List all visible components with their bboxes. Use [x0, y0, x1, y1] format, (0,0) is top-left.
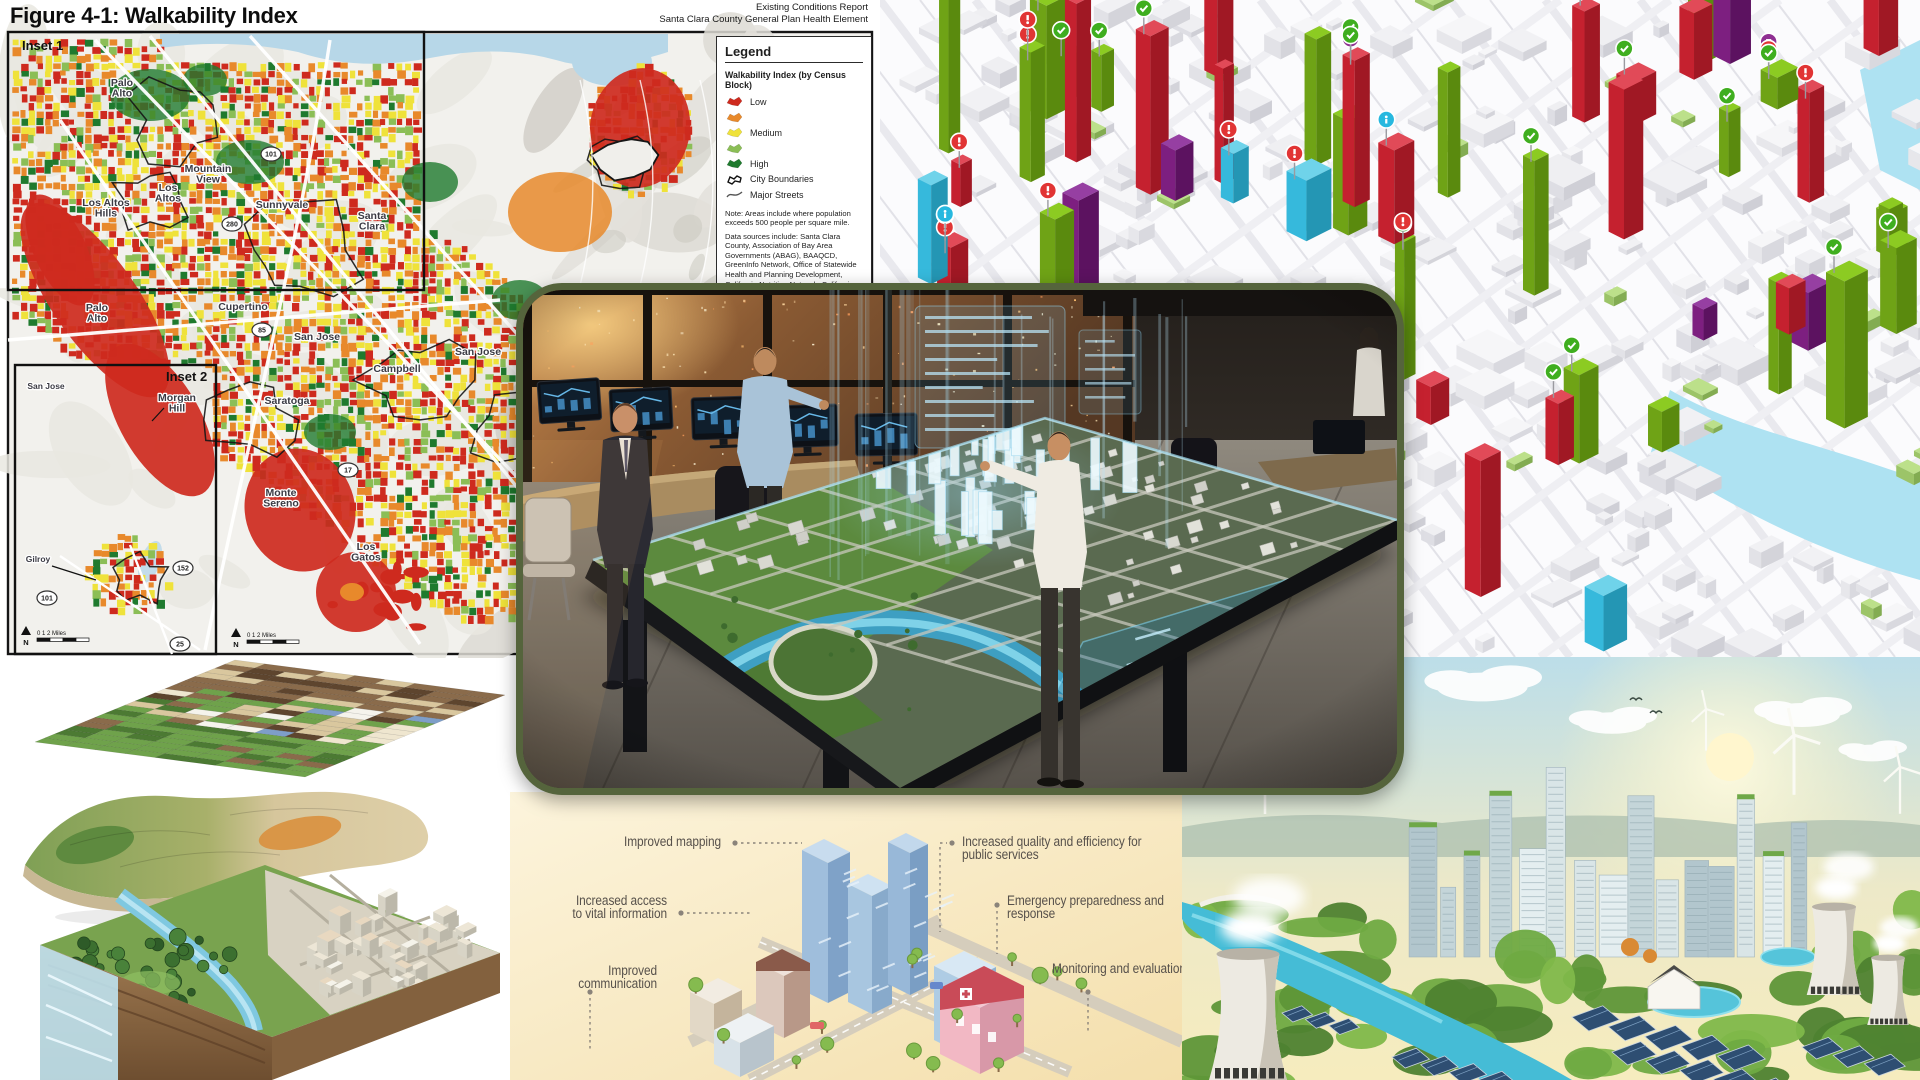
infographic-callout: Improved communication — [528, 965, 657, 991]
map-pin-icon — [1394, 213, 1411, 230]
legend-section-title: Walkability Index (by Census Block) — [725, 70, 863, 90]
legend-note: Note: Areas include where population exc… — [725, 209, 863, 228]
legend-swatch-icon — [725, 126, 744, 139]
map-pin-icon — [1797, 64, 1814, 81]
city-label: Saratoga — [265, 395, 310, 407]
planning-table-photo — [516, 283, 1404, 795]
legend-item: High — [725, 156, 863, 172]
map-pin-icon — [1053, 22, 1070, 39]
route-shield: 85 — [252, 323, 272, 337]
svg-text:101: 101 — [265, 152, 277, 159]
map-pin-icon — [1545, 363, 1562, 380]
city-label: SantaClara — [358, 210, 387, 233]
map-pin-icon — [1616, 40, 1633, 57]
city-label: Cupertino — [218, 301, 268, 313]
map-pin-icon — [1039, 182, 1056, 199]
figure-title: Figure 4-1: Walkability Index — [10, 3, 298, 29]
infographic-callout: Improved mapping — [535, 836, 721, 849]
gis-layers-diagram — [0, 545, 522, 1080]
report-line-1: Existing Conditions Report — [659, 2, 868, 14]
legend-sources: Data sources include: Santa Clara County… — [725, 232, 863, 290]
city-label: LosAltos — [155, 182, 181, 205]
map-pin-icon — [1091, 22, 1108, 39]
infographic-callout: Increased access to vital information — [529, 895, 667, 921]
map-pin-icon — [937, 205, 954, 222]
map-pin-icon — [1826, 238, 1843, 255]
legend-item-label: High — [750, 159, 769, 169]
legend-item: Low — [725, 94, 863, 110]
legend-item-label: Medium — [750, 128, 782, 138]
urban-planning-collage: N0 1 2 MilesN0 1 2 MilesPaloAltoMountain… — [0, 0, 1920, 1080]
legend-swatch-icon — [725, 173, 744, 186]
gis-layers-art — [0, 545, 522, 1080]
map-pin-icon — [1135, 0, 1152, 17]
legend-item — [725, 110, 863, 126]
inset2-label: Inset 2 — [166, 369, 207, 384]
map-pin-icon — [1220, 121, 1237, 138]
legend-swatch-icon — [725, 111, 744, 124]
map-pin-icon — [1880, 214, 1897, 231]
legend-swatch-icon — [725, 157, 744, 170]
smart-city-infographic: Improved mappingIncreased access to vita… — [510, 792, 1182, 1080]
legend-item-label: City Boundaries — [750, 174, 814, 184]
infographic-callout: Monitoring and evaluation — [1052, 963, 1182, 976]
city-label: MonteSereno — [263, 487, 299, 510]
map-pin-icon — [1760, 44, 1777, 61]
route-shield: 17 — [338, 463, 358, 477]
map-pin-icon — [1523, 127, 1540, 144]
legend-item-label: Low — [750, 97, 767, 107]
legend-swatch-icon — [725, 142, 744, 155]
city-label: Campbell — [373, 363, 420, 375]
legend-item: Medium — [725, 125, 863, 141]
city-label: San Jose — [455, 346, 501, 358]
planning-table-art — [523, 290, 1397, 788]
map-pin-icon — [1719, 87, 1736, 104]
svg-text:85: 85 — [258, 328, 266, 335]
city-label: PaloAlto — [86, 302, 108, 325]
city-label: Sunnyvale — [256, 199, 309, 211]
legend-item-label: Major Streets — [750, 190, 804, 200]
city-label: San Jose — [294, 331, 340, 343]
map-pin-icon — [1342, 27, 1359, 44]
legend-swatch-icon — [725, 95, 744, 108]
map-pin-icon — [1378, 111, 1395, 128]
legend-item: City Boundaries — [725, 172, 863, 188]
map-pin-icon — [1019, 11, 1036, 28]
svg-text:280: 280 — [226, 222, 238, 229]
report-header: Existing Conditions Report Santa Clara C… — [659, 2, 868, 25]
map-pin-icon — [1563, 337, 1580, 354]
city-label: San Jose — [27, 381, 65, 391]
legend-title: Legend — [725, 44, 863, 63]
city-label: PaloAlto — [111, 77, 133, 100]
legend-item — [725, 141, 863, 157]
legend-swatch-icon — [725, 188, 744, 201]
report-line-2: Santa Clara County General Plan Health E… — [659, 14, 868, 26]
infographic-callout: Emergency preparedness and response — [1007, 895, 1182, 921]
infographic-callout: Increased quality and efficiency for pub… — [962, 836, 1151, 862]
svg-text:17: 17 — [344, 468, 352, 475]
route-shield: 101 — [261, 147, 281, 161]
legend-item: Major Streets — [725, 187, 863, 203]
legend-items: LowMediumHighCity BoundariesMajor Street… — [725, 94, 863, 203]
map-pin-icon — [951, 133, 968, 150]
inset1-label: Inset 1 — [22, 38, 63, 53]
route-shield: 280 — [222, 217, 242, 231]
map-pin-icon — [1286, 145, 1303, 162]
